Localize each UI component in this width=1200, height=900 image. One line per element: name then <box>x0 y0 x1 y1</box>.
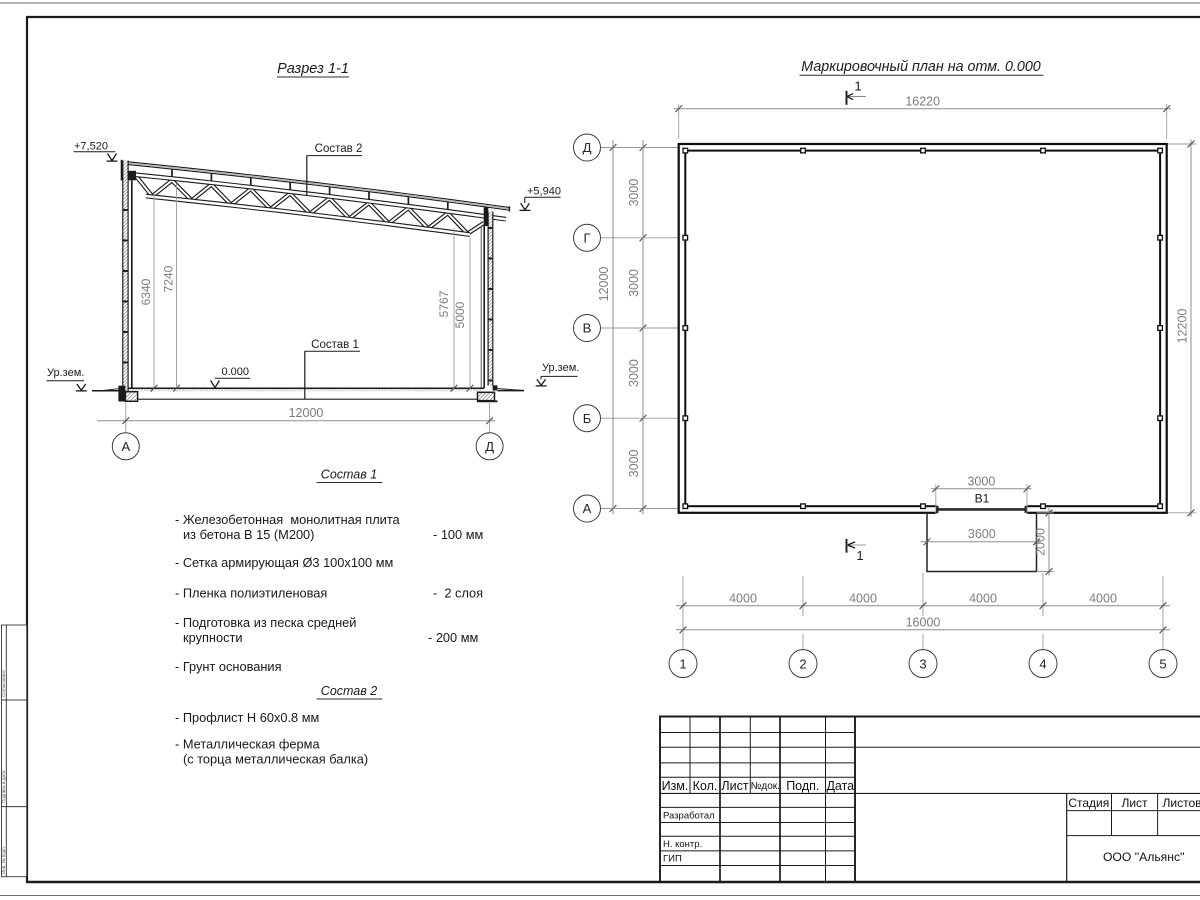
svg-text:Инв. № подл.: Инв. № подл. <box>1 846 6 874</box>
svg-text:Кол.: Кол. <box>693 779 718 793</box>
svg-text:0.000: 0.000 <box>222 366 250 378</box>
svg-text:3000: 3000 <box>627 179 641 207</box>
svg-text:- Пленка полиэтиленовая: - Пленка полиэтиленовая <box>175 586 327 601</box>
svg-text:Лист: Лист <box>721 779 748 793</box>
svg-text:В1: В1 <box>975 492 990 506</box>
svg-text:- Железобетонная монолитная п: - Железобетонная монолитная плита <box>175 512 401 527</box>
svg-text:5767: 5767 <box>437 290 451 317</box>
svg-text:- Грунт основания: - Грунт основания <box>175 659 282 674</box>
svg-text:В: В <box>583 321 592 336</box>
svg-text:Состав 2: Состав 2 <box>315 143 363 155</box>
svg-text:+7,520: +7,520 <box>74 141 108 153</box>
svg-text:Д: Д <box>583 140 592 155</box>
svg-text:3000: 3000 <box>627 449 641 477</box>
svg-text:1: 1 <box>854 78 861 93</box>
svg-text:1: 1 <box>679 656 686 671</box>
svg-text:5000: 5000 <box>453 301 467 328</box>
svg-text:- Металлическая ферма: - Металлическая ферма <box>175 737 320 752</box>
svg-text:А: А <box>583 501 592 516</box>
svg-text:Разработал: Разработал <box>663 811 715 822</box>
svg-text:Б: Б <box>583 411 592 426</box>
svg-text:4: 4 <box>1039 656 1046 671</box>
svg-text:Ур.зем.: Ур.зем. <box>542 362 579 374</box>
svg-text:Дата: Дата <box>826 779 854 793</box>
svg-text:12000: 12000 <box>597 267 611 302</box>
svg-text:- 2 слоя: - 2 слоя <box>433 586 483 601</box>
svg-text:Состав 2: Состав 2 <box>321 684 377 698</box>
svg-text:Д: Д <box>485 439 494 454</box>
svg-text:Маркировочный план на отм. 0.0: Маркировочный план на отм. 0.000 <box>801 59 1041 75</box>
svg-text:Лист: Лист <box>1121 796 1148 810</box>
svg-text:4000: 4000 <box>1089 591 1117 605</box>
svg-text:Листов: Листов <box>1163 796 1200 810</box>
svg-text:ООО "Альянс": ООО "Альянс" <box>1103 850 1185 864</box>
svg-text:12000: 12000 <box>289 406 324 420</box>
svg-text:А: А <box>121 439 130 454</box>
svg-text:Разрез 1-1: Разрез 1-1 <box>277 61 349 77</box>
svg-text:3000: 3000 <box>627 359 641 387</box>
svg-text:16220: 16220 <box>905 95 940 109</box>
svg-text:2: 2 <box>799 656 806 671</box>
svg-text:Состав 1: Состав 1 <box>311 339 359 351</box>
svg-text:3000: 3000 <box>627 269 641 297</box>
svg-text:5: 5 <box>1159 656 1166 671</box>
svg-text:4000: 4000 <box>729 591 757 605</box>
svg-text:ГИП: ГИП <box>663 854 682 865</box>
svg-text:4000: 4000 <box>969 591 997 605</box>
svg-text:1: 1 <box>856 548 863 563</box>
svg-text:Н. контр.: Н. контр. <box>663 839 702 850</box>
svg-text:Г: Г <box>583 230 590 245</box>
svg-text:3000: 3000 <box>967 475 995 489</box>
svg-text:3600: 3600 <box>968 527 996 541</box>
svg-text:6340: 6340 <box>139 278 153 305</box>
svg-text:Изм.: Изм. <box>662 779 689 793</box>
svg-text:12200: 12200 <box>1176 309 1190 344</box>
svg-text:Подп.: Подп. <box>786 779 819 793</box>
svg-text:4000: 4000 <box>849 591 877 605</box>
svg-text:Согласовано: Согласовано <box>1 669 6 697</box>
svg-text:Состав 1: Состав 1 <box>321 468 377 482</box>
svg-text:- Сетка армирующая Ø3 100х100: - Сетка армирующая Ø3 100х100 мм <box>175 555 393 570</box>
svg-text:крупности: крупности <box>183 630 243 645</box>
svg-text:- Профлист Н 60х0.8 мм: - Профлист Н 60х0.8 мм <box>175 710 319 725</box>
svg-text:16000: 16000 <box>906 615 941 629</box>
svg-text:7240: 7240 <box>161 265 175 292</box>
svg-text:2000: 2000 <box>1033 528 1047 556</box>
svg-text:Ур.зем.: Ур.зем. <box>47 367 84 379</box>
svg-text:- 200 мм: - 200 мм <box>428 630 478 645</box>
svg-text:- 100 мм: - 100 мм <box>433 527 483 542</box>
svg-text:(с торца металлическая балка): (с торца металлическая балка) <box>183 752 368 767</box>
svg-text:+5,940: +5,940 <box>527 186 561 198</box>
svg-text:Подпись и дата: Подпись и дата <box>1 770 6 803</box>
svg-text:3: 3 <box>919 656 926 671</box>
svg-text:- Подготовка из песка средней: - Подготовка из песка средней <box>175 615 356 630</box>
svg-text:из бетона В 15 (М200): из бетона В 15 (М200) <box>183 527 314 542</box>
svg-text:Стадия: Стадия <box>1068 796 1109 810</box>
svg-text:№док.: №док. <box>751 781 780 792</box>
